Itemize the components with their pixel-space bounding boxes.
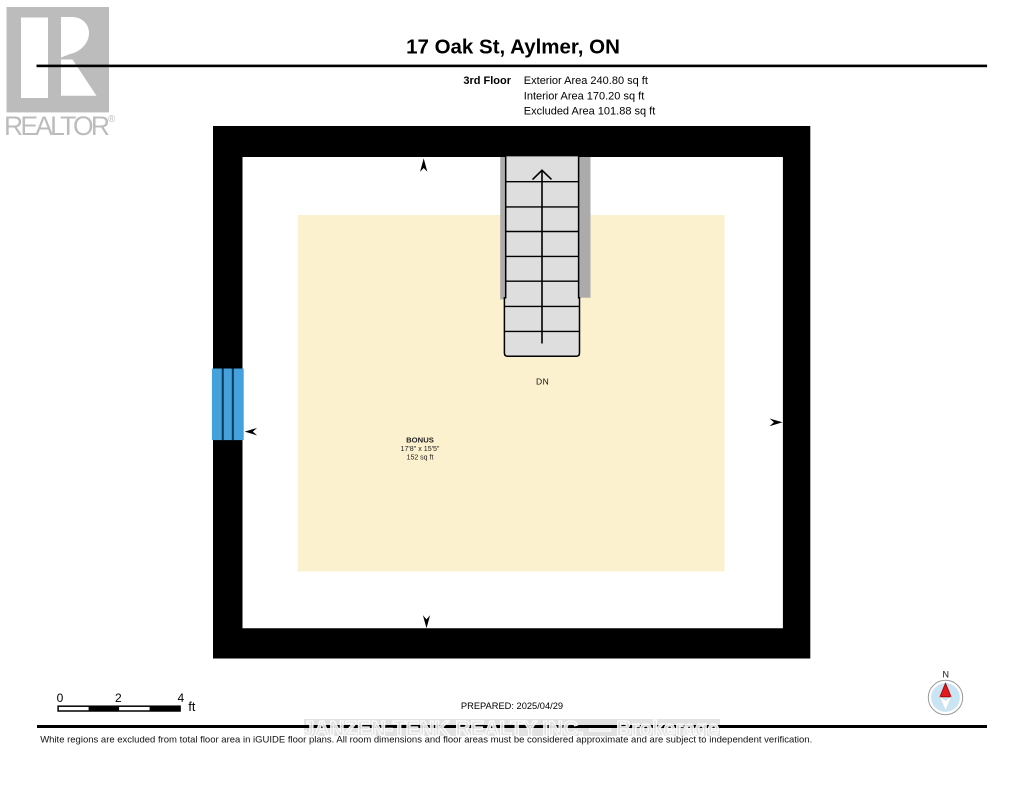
- svg-text:PREPARED: 2025/04/29: PREPARED: 2025/04/29: [461, 701, 563, 711]
- svg-text:17'8" x 15'5": 17'8" x 15'5": [401, 445, 440, 453]
- svg-text:DN: DN: [536, 377, 549, 387]
- svg-text:White regions are excluded fro: White regions are excluded from total fl…: [40, 734, 812, 745]
- svg-text:152 sq ft: 152 sq ft: [407, 455, 434, 462]
- svg-text:2: 2: [115, 691, 122, 705]
- svg-text:BONUS: BONUS: [406, 436, 434, 445]
- svg-text:N: N: [943, 670, 950, 680]
- svg-text:4: 4: [177, 691, 184, 705]
- svg-text:0: 0: [57, 691, 64, 705]
- svg-text:ft: ft: [188, 700, 195, 714]
